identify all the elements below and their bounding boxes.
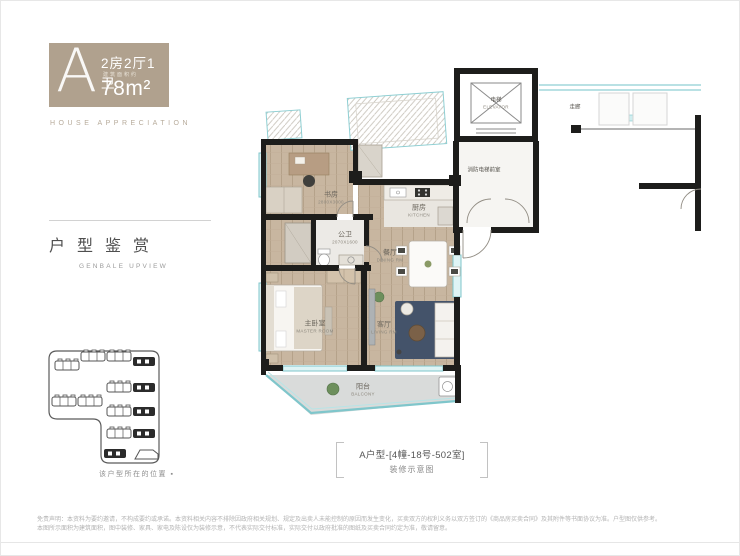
fridge-icon [438, 207, 453, 225]
bracket-left [336, 442, 344, 478]
unit-badge: A 2房2厅1卫 建筑面积约 78m² [49, 43, 169, 107]
nightstand-icon [266, 273, 278, 282]
floor-lamp-icon [397, 350, 402, 355]
equipment-platform-left [266, 110, 302, 140]
disclaimer: 免责声明：本资料为要约邀请，不构成要约或承诺。本资料相关内容不排除因政府相关规划… [37, 516, 707, 534]
divider-rule [49, 220, 211, 221]
floor-plan: 书房2800X3000 公卫2070X1600 厨房KITCHEN 餐厅DINI… [249, 59, 709, 439]
tv-console-icon [369, 289, 375, 345]
room-label-study: 书房2800X3000 [318, 191, 344, 206]
area-value: 78m² [101, 77, 151, 101]
disclaimer-line1: 免责声明：本资料为要约邀请，不构成要约或承诺。本资料相关内容不排除因政府相关规划… [37, 516, 707, 525]
toilet-icon [318, 249, 330, 266]
room-label-elevator: 电梯ELEVATOR [483, 98, 509, 111]
room-label-living: 客厅LIVING RM [371, 321, 397, 336]
equipment-platform-top [347, 92, 446, 151]
site-plan-map [41, 339, 181, 469]
unit-letter: A [56, 39, 97, 103]
room-label-fire-lobby: 消防电梯前室 [467, 167, 500, 174]
sofa-icon [435, 303, 457, 357]
section-subtitle: GENBALE UPVIEW [79, 263, 219, 270]
room-label-dining: 餐厅DINING RM [377, 249, 404, 264]
washer-icon [439, 377, 456, 396]
hall-closet-icon [285, 223, 311, 263]
unit-caption-title: A户型-[4幢-18号-502室] [348, 447, 476, 461]
neighbor-unit-walls [599, 93, 701, 231]
room-label-master: 主卧室MASTER ROOM [296, 320, 333, 335]
unit-caption-subtitle: 装修示意图 [348, 464, 476, 475]
coffee-table-icon [409, 325, 425, 341]
site-plan-caption: 该户型所在的位置 ▪ [99, 469, 174, 479]
armchair-icon [401, 303, 413, 315]
room-label-kitchen: 厨房KITCHEN [408, 204, 430, 219]
room-label-balcony: 阳台BALCONY [351, 383, 375, 398]
plant-icon [327, 383, 339, 395]
section-header: 户型鉴赏 GENBALE UPVIEW [49, 220, 219, 270]
section-title: 户型鉴赏 [49, 232, 219, 256]
bracket-right [480, 442, 488, 478]
disclaimer-line2: 本图所示面积为建筑面积，图中装修、家具、家电及陈设仅为装修示意，不代表实际交付标… [37, 525, 707, 534]
room-label-corridor: 走廊 [569, 104, 580, 111]
floorplan-poster-page: A 2房2厅1卫 建筑面积约 78m² HOUSE APPRECIATION 户… [0, 0, 740, 556]
house-appreciation-tagline: HOUSE APPRECIATION [50, 120, 191, 127]
bottom-rule [1, 542, 739, 543]
vanity-icon [339, 255, 363, 265]
unit-caption-box: A户型-[4幢-18号-502室] 装修示意图 [336, 442, 488, 478]
room-label-bathroom: 公卫2070X1600 [332, 231, 358, 246]
plant-icon [374, 292, 384, 302]
